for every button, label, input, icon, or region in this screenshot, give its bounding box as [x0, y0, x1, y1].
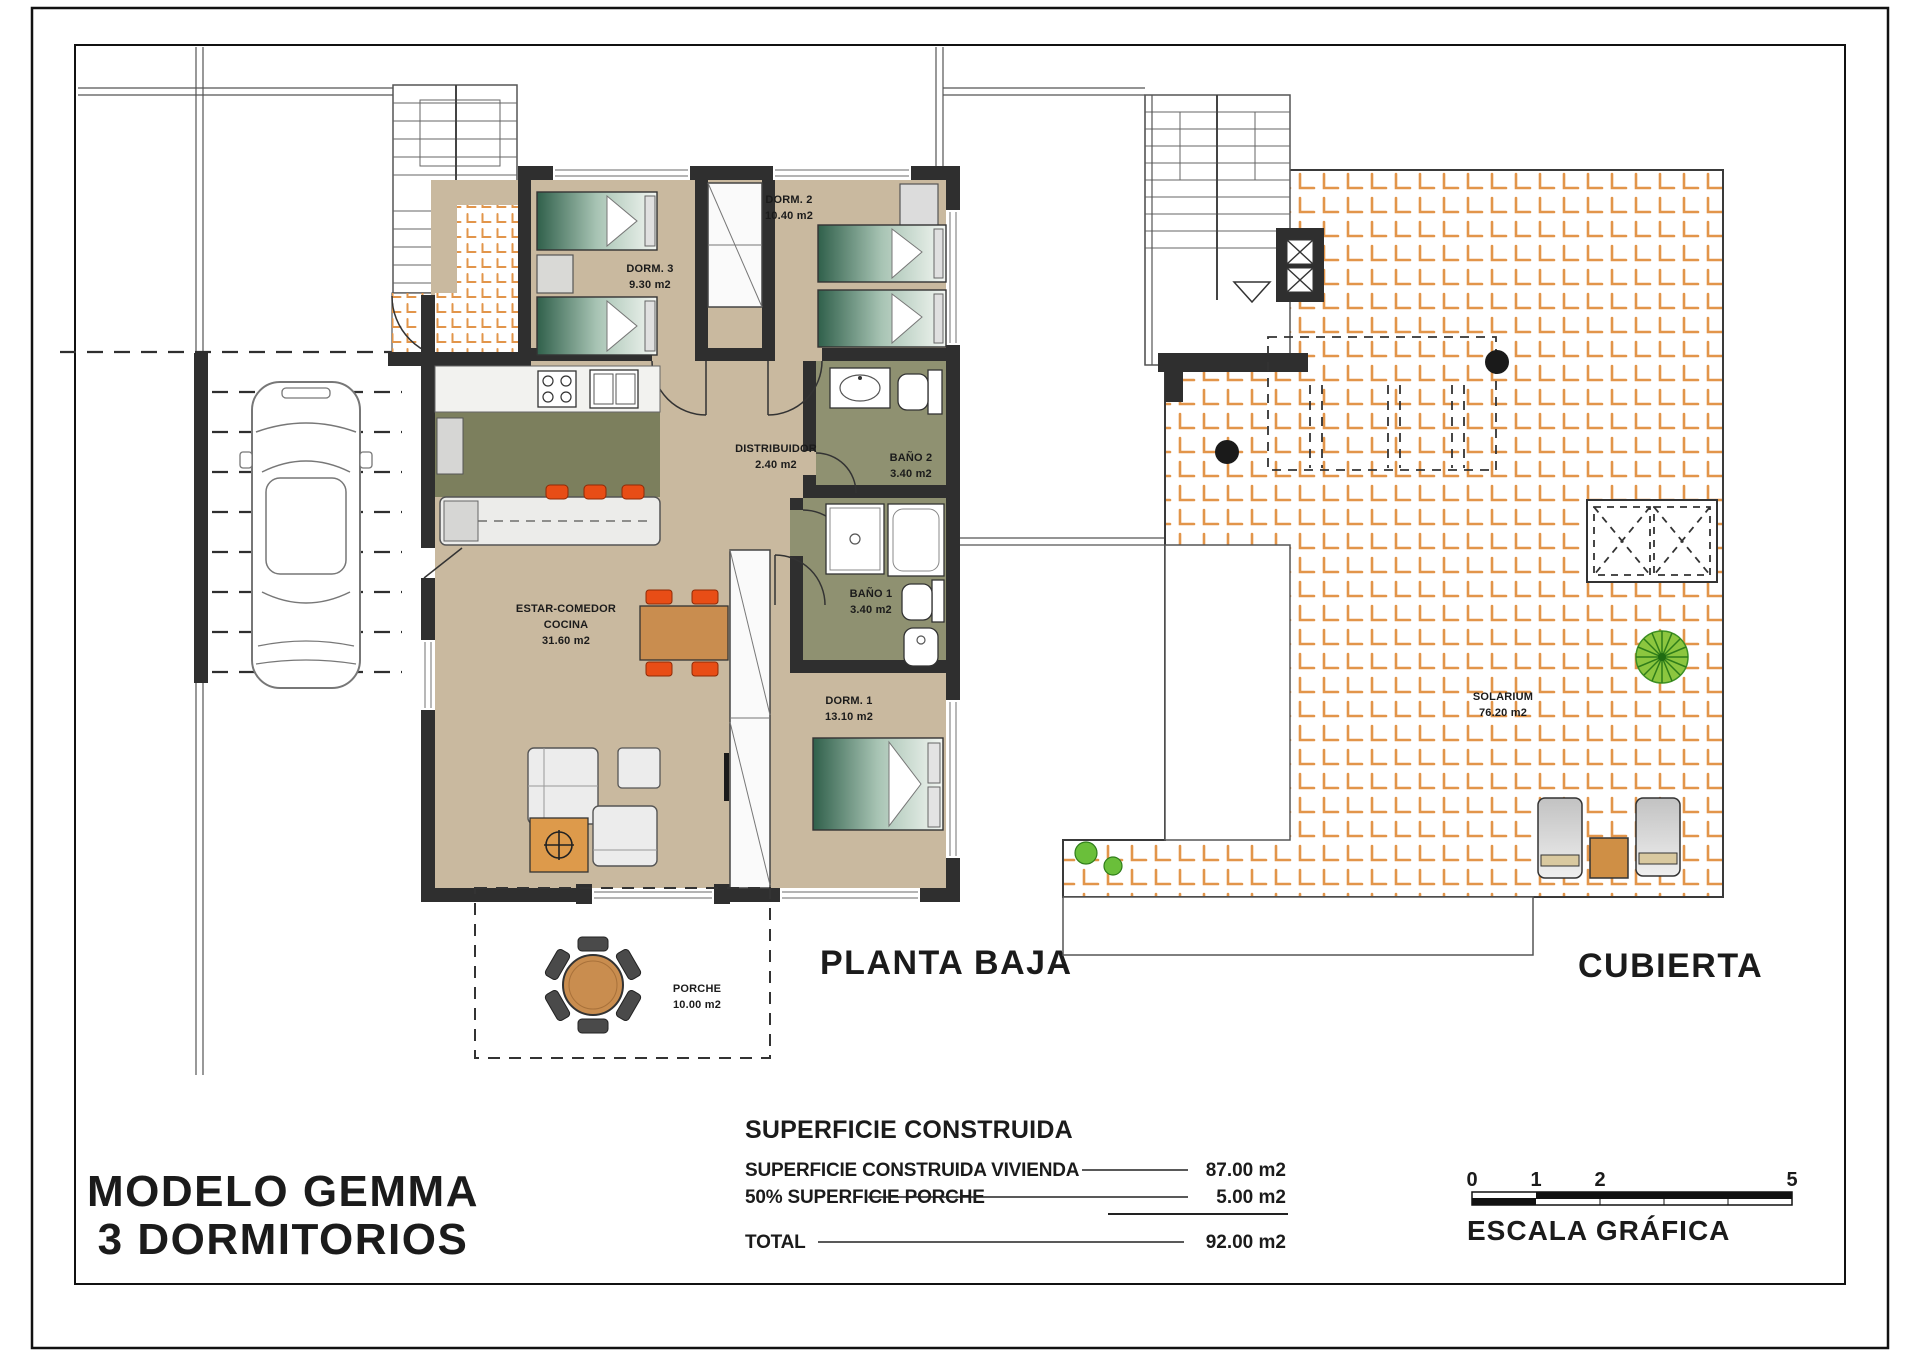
summary-row-value: 87.00 m2: [1206, 1160, 1286, 1181]
boundary-wall: [194, 353, 208, 683]
floorplan-sheet: DORM. 3 9.30 m2 DORM. 2 10.40 m2 DISTRIB…: [0, 0, 1920, 1356]
estar-area: 31.60 m2: [542, 635, 590, 647]
bano2-area: 3.40 m2: [890, 468, 932, 480]
living-furniture: [528, 748, 660, 872]
roof-stairs: [1145, 95, 1290, 365]
skylight: [1587, 500, 1717, 582]
round-table: [563, 955, 623, 1015]
ground-floor-title: PLANTA BAJA: [820, 944, 1073, 982]
stove: [538, 371, 576, 407]
toilet: [898, 370, 942, 414]
chair: [692, 662, 718, 676]
fridge: [437, 418, 463, 474]
chimney: [1276, 228, 1324, 302]
bano2-label: BAÑO 2: [890, 451, 933, 464]
plant: [1636, 631, 1688, 683]
window: [946, 700, 960, 858]
sofa-cushion: [618, 748, 660, 788]
scale-label: ESCALA GRÁFICA: [1467, 1215, 1730, 1246]
scale-tick: 5: [1786, 1169, 1797, 1191]
porch-chair: [578, 937, 608, 951]
dorm2-area: 10.40 m2: [765, 210, 813, 222]
summary-row-label: SUPERFICIE CONSTRUIDA VIVIENDA: [745, 1160, 1080, 1181]
dorm1-area: 13.10 m2: [825, 711, 873, 723]
estar-label-2: COCINA: [544, 619, 589, 631]
title-block: MODELO GEMMA 3 DORMITORIOS: [87, 1167, 479, 1264]
chair: [646, 662, 672, 676]
car: [240, 382, 372, 688]
summary-title: SUPERFICIE CONSTRUIDA: [745, 1116, 1073, 1144]
solarium-area: 76.20 m2: [1479, 707, 1527, 719]
roof-drain-dot: [1485, 350, 1509, 374]
armchair: [593, 806, 657, 866]
double-bed: [813, 738, 943, 830]
bathtub: [888, 504, 944, 576]
shower: [826, 504, 884, 574]
distribuidor-area: 2.40 m2: [755, 459, 797, 471]
porche-area: 10.00 m2: [673, 999, 721, 1011]
sink: [590, 370, 638, 408]
dorm1-closet: [724, 550, 770, 888]
window: [946, 210, 960, 345]
bidet: [904, 628, 938, 666]
tv: [724, 753, 729, 801]
dorm3-area: 9.30 m2: [629, 279, 671, 291]
lounger-table: [1590, 838, 1628, 878]
model-title-line2: 3 DORMITORIOS: [98, 1215, 469, 1264]
window: [773, 166, 911, 180]
sliding-door: [592, 888, 714, 902]
porch-chair: [578, 1019, 608, 1033]
scale-tick: 2: [1594, 1169, 1605, 1191]
nightstand: [537, 255, 573, 293]
scale-tick: 1: [1530, 1169, 1541, 1191]
stool: [622, 485, 644, 499]
distribuidor-label: DISTRIBUIDOR: [735, 443, 817, 455]
stair-void: [1165, 545, 1290, 840]
scale-bar: [1472, 1192, 1792, 1205]
stool: [584, 485, 606, 499]
bedroom1-furniture: [813, 738, 943, 830]
bed: [537, 192, 657, 250]
solarium-label: SOLARIUM: [1473, 691, 1533, 703]
dining-table: [640, 606, 728, 660]
roof-drain-dot: [1215, 440, 1239, 464]
dorm3-label: DORM. 3: [626, 263, 673, 275]
summary-row-value: 5.00 m2: [1216, 1187, 1286, 1208]
chair: [646, 590, 672, 604]
bed: [818, 290, 946, 347]
scale-tick: 0: [1466, 1169, 1477, 1191]
roof-plan: SOLARIUM 76.20 m2 CUBIERTA: [1063, 95, 1763, 985]
side-table: [530, 818, 588, 872]
sink: [830, 368, 890, 408]
dorm1-label: DORM. 1: [825, 695, 872, 707]
roof-plan-title: CUBIERTA: [1578, 947, 1763, 985]
bed: [537, 297, 657, 355]
hall-closet: [708, 183, 762, 307]
window: [780, 888, 920, 902]
dorm2-label: DORM. 2: [765, 194, 812, 206]
bed: [818, 225, 946, 282]
window: [421, 640, 435, 710]
stool: [546, 485, 568, 499]
summary-row-label: TOTAL: [745, 1232, 806, 1253]
estar-label-1: ESTAR-COMEDOR: [516, 603, 616, 615]
chair: [692, 590, 718, 604]
summary-row-value: 92.00 m2: [1206, 1232, 1286, 1253]
porch-roof-below: [1063, 897, 1533, 955]
bano1-area: 3.40 m2: [850, 604, 892, 616]
porche-label: PORCHE: [673, 983, 721, 995]
bano1-label: BAÑO 1: [850, 587, 893, 600]
toilet: [902, 580, 944, 622]
model-title-line1: MODELO GEMMA: [87, 1167, 479, 1216]
window: [553, 166, 690, 180]
